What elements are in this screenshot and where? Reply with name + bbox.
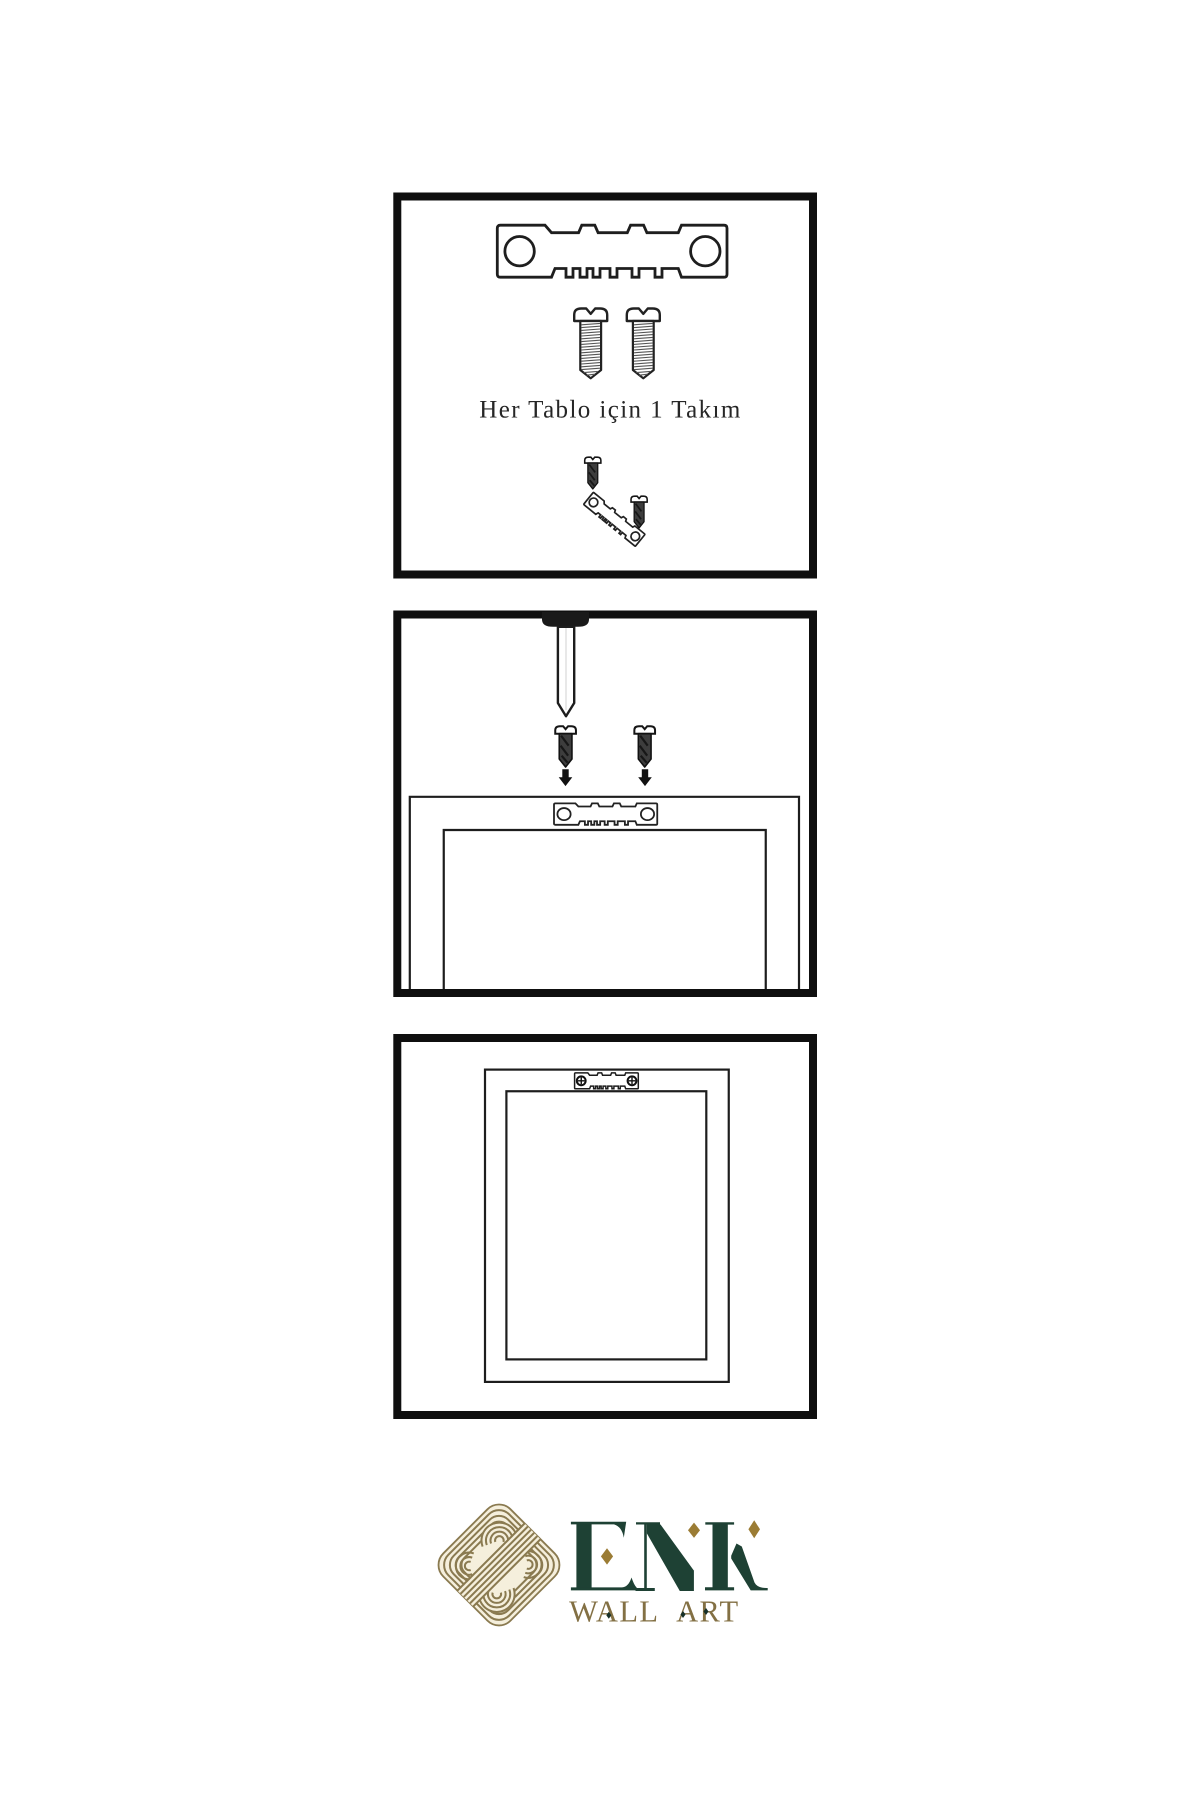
svg-text:WALL ART: WALL ART xyxy=(569,1594,739,1628)
svg-text:Her Tablo için 1 Takım: Her Tablo için 1 Takım xyxy=(479,397,741,424)
